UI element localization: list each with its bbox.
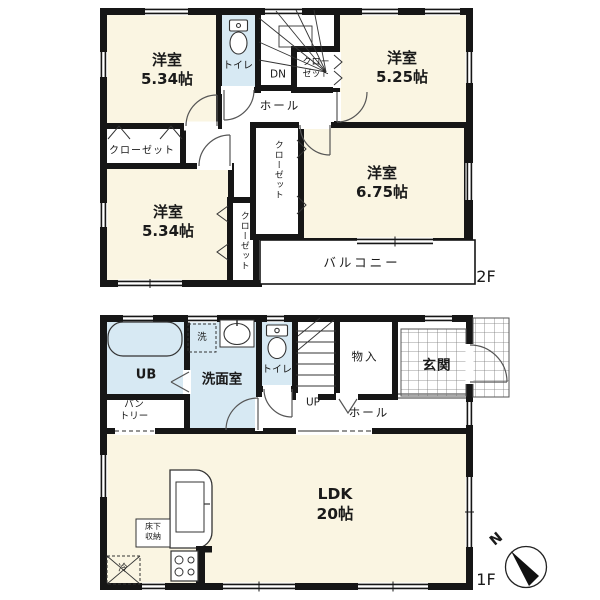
compass-icon bbox=[506, 547, 547, 588]
label-balcony: バルコニー bbox=[323, 255, 400, 271]
label-room-b-2f: 洋室 5.34帖 bbox=[142, 203, 194, 241]
label-stairs-up: UP bbox=[306, 396, 320, 409]
label-closet-center-2f: クローゼット bbox=[271, 140, 283, 200]
label-storage-1f: 物入 bbox=[352, 350, 379, 365]
toilet-icon-2f bbox=[230, 20, 248, 54]
label-washer-box: 洗 bbox=[197, 332, 207, 344]
label-closet-stairs-2f: クロー ゼット bbox=[302, 57, 329, 80]
floorplan-graphics bbox=[0, 0, 600, 600]
label-pantry: パン トリー bbox=[120, 399, 149, 423]
label-toilet-2f: トイレ bbox=[223, 61, 253, 74]
label-fridge: 冷 bbox=[118, 563, 128, 575]
label-hall-1f: ホール bbox=[349, 406, 390, 421]
stove-icon bbox=[171, 551, 198, 581]
label-floor-1f: 1F bbox=[476, 570, 495, 590]
label-ldk: LDK 20帖 bbox=[316, 485, 353, 525]
toilet-icon-1f bbox=[267, 325, 288, 359]
label-washroom: 洗面室 bbox=[202, 371, 243, 388]
label-room-c-2f: 洋室 5.25帖 bbox=[376, 49, 428, 87]
sink-icon bbox=[220, 320, 254, 347]
label-floor-2f: 2F bbox=[476, 267, 495, 287]
label-entrance: 玄関 bbox=[423, 357, 452, 374]
label-closet-bottom-2f: クローゼット bbox=[237, 211, 249, 271]
label-room-d-2f: 洋室 6.75帖 bbox=[356, 164, 408, 202]
entrance-tiles bbox=[401, 318, 509, 397]
label-floor-storage: 床下 収納 bbox=[145, 522, 161, 542]
label-toilet-1f: トイレ bbox=[262, 365, 292, 378]
label-hall-2f: ホール bbox=[260, 99, 301, 114]
label-unit-bath: UB bbox=[136, 368, 156, 385]
floor-plan-page: 洋室 5.34帖 洋室 5.25帖 洋室 6.75帖 洋室 5.34帖 トイレ … bbox=[0, 0, 600, 600]
label-stairs-dn: DN bbox=[270, 68, 286, 81]
label-closet-left-2f: クローゼット bbox=[109, 146, 175, 159]
label-room-a-2f: 洋室 5.34帖 bbox=[141, 51, 193, 89]
